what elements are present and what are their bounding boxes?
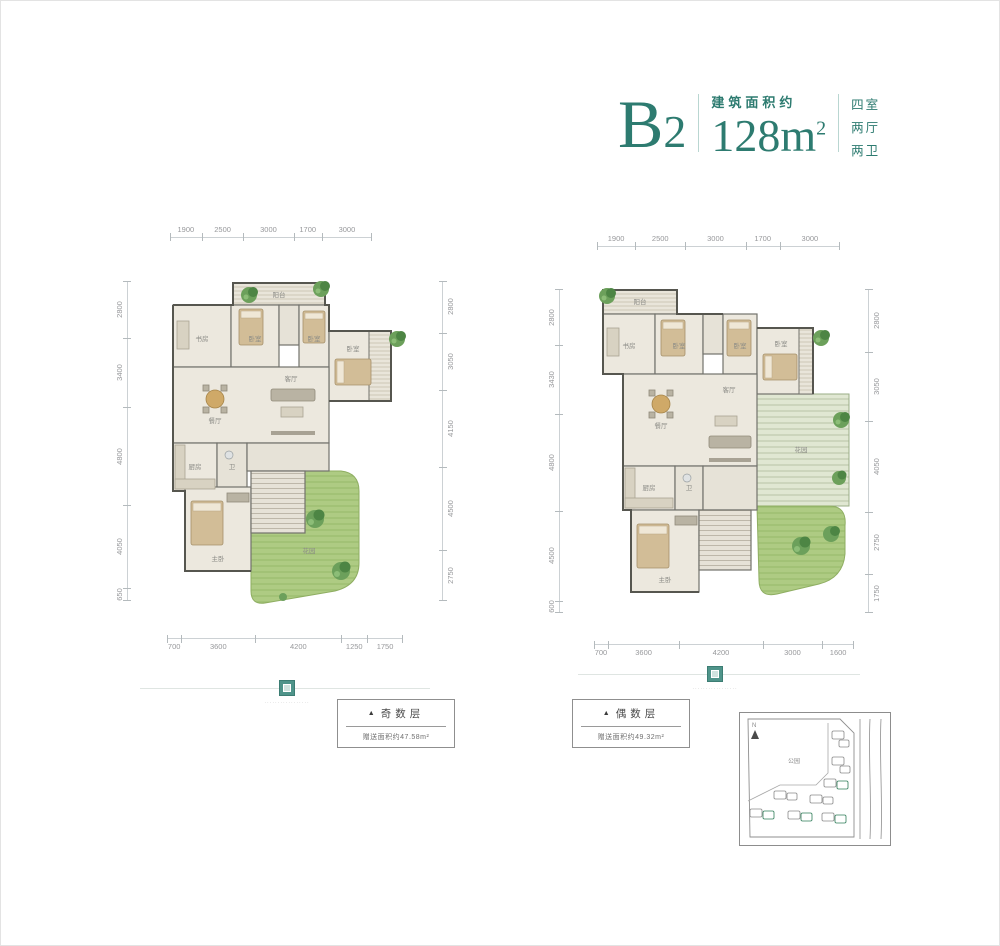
dims-top-even: 19002500300017003000 xyxy=(597,231,840,247)
dim-label: 4150 xyxy=(443,390,458,467)
dim-label: 4800 xyxy=(112,407,127,505)
floorplan-even: 阳台 书房 卧室 卧室 卧室 餐厅 客厅 厨房 卫 主卧 花园 xyxy=(595,288,857,620)
dim-label: 4050 xyxy=(869,421,884,512)
dims-left-odd: 2800340048004050650 xyxy=(112,281,128,601)
dim-label: 2500 xyxy=(202,222,244,237)
site-plan: N 公园 xyxy=(739,712,891,846)
area-block: 建筑面积约 128m2 xyxy=(711,92,826,162)
dim-label: 1900 xyxy=(597,231,635,246)
dim-label: 3050 xyxy=(869,352,884,421)
unit-digit: 2 xyxy=(663,109,686,155)
tree-icon xyxy=(813,330,830,346)
dim-label: 3600 xyxy=(181,639,255,654)
svg-text:主卧: 主卧 xyxy=(212,554,226,563)
floor-tag-text: 偶数层 xyxy=(616,706,660,721)
room-info-line: 四室 xyxy=(851,94,880,113)
dim-label: 1700 xyxy=(746,231,780,246)
dim-label: 4500 xyxy=(443,467,458,550)
room-info-line: 两卫 xyxy=(851,140,880,159)
area-sup: 2 xyxy=(816,118,826,140)
separator-caption-even: ················· xyxy=(675,686,755,692)
svg-text:餐厅: 餐厅 xyxy=(209,416,223,425)
dim-label: 4500 xyxy=(544,511,559,601)
bonus-area-text: 赠送面积约47.58m² xyxy=(346,727,446,742)
dim-label: 2800 xyxy=(869,289,884,352)
tree-icon xyxy=(389,331,406,347)
svg-text:厨房: 厨房 xyxy=(189,462,202,471)
road-lines xyxy=(860,719,882,839)
dims-right-odd: 28003050415045002750 xyxy=(442,281,458,601)
compass-inner xyxy=(283,684,291,692)
dim-label: 3000 xyxy=(763,645,823,660)
dim-label: 700 xyxy=(167,639,181,654)
wing-balcony xyxy=(799,328,813,394)
svg-text:书房: 书房 xyxy=(623,341,636,350)
corridor xyxy=(703,466,757,510)
corridor xyxy=(247,443,329,471)
dim-label: 4200 xyxy=(255,639,341,654)
bathroom-1 xyxy=(279,305,299,345)
compass-icon xyxy=(707,666,723,682)
tree-icon xyxy=(313,281,330,297)
svg-text:主卧: 主卧 xyxy=(659,575,673,584)
separator-caption-odd: ················· xyxy=(247,700,327,706)
dim-label: 2800 xyxy=(544,289,559,345)
svg-text:卧室: 卧室 xyxy=(308,334,322,343)
dim-label: 2800 xyxy=(112,281,127,338)
dim-label: 1250 xyxy=(341,639,367,654)
dim-label: 3000 xyxy=(243,222,293,237)
svg-text:卧室: 卧室 xyxy=(249,334,263,343)
bush-icon xyxy=(279,593,287,601)
svg-text:花园: 花园 xyxy=(303,546,316,555)
site-plan-svg: N 公园 xyxy=(740,713,890,845)
dims-bottom-even: 7003600420030001600 xyxy=(594,644,854,660)
svg-text:卧室: 卧室 xyxy=(347,344,361,353)
dim-label: 1900 xyxy=(170,222,202,237)
floor-tag-title: ▲ 偶数层 xyxy=(581,706,681,727)
svg-text:客厅: 客厅 xyxy=(285,374,299,383)
dim-label: 2750 xyxy=(869,512,884,574)
floor-tag-text: 奇数层 xyxy=(381,706,425,721)
dim-label: 2750 xyxy=(443,550,458,601)
svg-text:卫: 卫 xyxy=(229,463,236,471)
dim-label: 3400 xyxy=(112,338,127,407)
park-label: 公园 xyxy=(788,758,800,765)
dim-label: 600 xyxy=(544,601,559,613)
room-info: 四室 两厅 两卫 xyxy=(851,94,880,159)
dim-label: 1600 xyxy=(822,645,854,660)
dims-bottom-odd: 7003600420012501750 xyxy=(167,638,403,654)
wing-balcony xyxy=(369,331,391,401)
dim-label: 1750 xyxy=(869,574,884,613)
svg-text:卧室: 卧室 xyxy=(734,341,748,350)
dim-label: 3000 xyxy=(780,231,840,246)
compass-icon xyxy=(279,680,295,696)
bonus-area-text: 赠送面积约49.32m² xyxy=(581,727,681,742)
header-divider-2 xyxy=(838,94,839,152)
dims-top-odd: 19002500300017003000 xyxy=(170,222,372,238)
svg-text:花园: 花园 xyxy=(795,445,808,454)
dim-label: 700 xyxy=(594,645,608,660)
floorplan-page: B 2 建筑面积约 128m2 四室 两厅 两卫 190025003000170… xyxy=(0,0,1000,946)
dim-label: 3000 xyxy=(685,231,745,246)
svg-text:N: N xyxy=(752,723,756,729)
header-divider xyxy=(698,94,699,152)
area-value: 128m2 xyxy=(711,111,826,162)
dim-label: 650 xyxy=(112,588,127,601)
svg-text:厨房: 厨房 xyxy=(643,483,656,492)
north-arrow-icon: N xyxy=(751,723,759,739)
compass-inner xyxy=(711,670,719,678)
dim-label: 1700 xyxy=(294,222,322,237)
stairs xyxy=(699,510,751,570)
dim-label: 3600 xyxy=(608,645,679,660)
dim-label: 3000 xyxy=(322,222,372,237)
floor-tag-title: ▲ 奇数层 xyxy=(346,706,446,727)
dim-label: 4200 xyxy=(679,645,762,660)
floorplan-odd: 阳台 书房 卧室 卧室 卧室 餐厅 客厅 厨房 卫 主卧 花园 xyxy=(163,281,417,609)
unit-header: B 2 建筑面积约 128m2 四室 两厅 两卫 xyxy=(618,88,880,162)
room-info-line: 两厅 xyxy=(851,117,880,136)
dim-label: 2800 xyxy=(443,281,458,333)
stairs xyxy=(251,471,305,533)
area-label: 建筑面积约 xyxy=(711,92,826,111)
triangle-marker-icon: ▲ xyxy=(368,710,375,717)
dims-right-even: 28003050405027501750 xyxy=(868,289,884,613)
svg-text:卫: 卫 xyxy=(686,484,693,492)
dim-label: 3050 xyxy=(443,333,458,390)
dim-label: 3430 xyxy=(544,345,559,414)
svg-text:卧室: 卧室 xyxy=(775,339,789,348)
svg-text:餐厅: 餐厅 xyxy=(655,421,669,430)
unit-letter: B xyxy=(618,90,663,158)
dim-label: 1750 xyxy=(367,639,403,654)
dim-label: 4800 xyxy=(544,414,559,510)
svg-text:客厅: 客厅 xyxy=(723,385,737,394)
area-number: 128m xyxy=(711,110,816,161)
bathroom-1 xyxy=(703,314,723,354)
dim-label: 4050 xyxy=(112,505,127,588)
floor-tag-odd: ▲ 奇数层 赠送面积约47.58m² xyxy=(337,699,455,748)
svg-text:阳台: 阳台 xyxy=(634,297,647,306)
svg-text:书房: 书房 xyxy=(196,334,209,343)
svg-text:卧室: 卧室 xyxy=(673,341,687,350)
floor-tag-even: ▲ 偶数层 赠送面积约49.32m² xyxy=(572,699,690,748)
unit-name: B 2 xyxy=(618,90,686,158)
svg-text:阳台: 阳台 xyxy=(273,290,286,299)
dims-left-even: 2800343048004500600 xyxy=(544,289,560,613)
building-footprints xyxy=(750,731,850,823)
dim-label: 2500 xyxy=(635,231,685,246)
triangle-marker-icon: ▲ xyxy=(603,710,610,717)
